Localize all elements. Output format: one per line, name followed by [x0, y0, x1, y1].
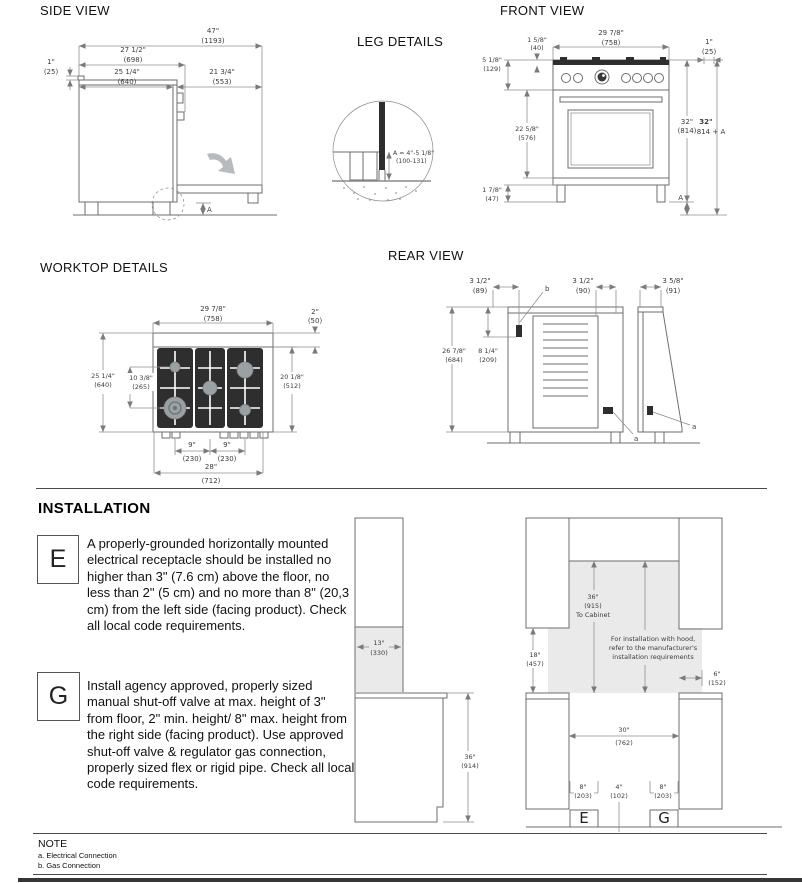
note-item-a: a. Electrical Connection — [38, 851, 117, 860]
dim-21in: 21 3/4" — [209, 68, 235, 76]
dim-w1038mm: (265) — [132, 383, 149, 391]
dim-r358-in: 3 5/8" — [662, 277, 683, 285]
dim-47mm: (1193) — [201, 37, 225, 45]
dim-w9b-in: 9" — [223, 441, 231, 449]
dim-2258mm: (576) — [518, 134, 535, 142]
label-a2: a — [692, 423, 696, 431]
dim-36-note: To Cabinet — [575, 611, 610, 619]
zone-letter-G: G — [658, 809, 670, 827]
burner-knob — [574, 74, 583, 83]
dim-4in: 4" — [615, 783, 622, 791]
electrical-connection-a — [603, 407, 613, 414]
dim-36in-side: 36" — [464, 753, 475, 761]
base-cabinet-right — [679, 693, 722, 809]
leg-right — [363, 152, 377, 180]
dim-32a-mm: 814 + A — [697, 128, 726, 136]
soffit-cabinet — [569, 518, 679, 561]
door-swing-arrow-icon — [207, 153, 235, 174]
dim-8l-in: 8" — [579, 783, 586, 791]
side-view-title: SIDE VIEW — [40, 3, 110, 18]
rear-leg — [85, 202, 98, 215]
dim-w1038in: 10 3/8" — [129, 374, 153, 382]
tall-cabinet — [355, 518, 403, 627]
gas-note-paragraph: Install agency approved, properly sized … — [87, 678, 355, 793]
front-leg — [153, 202, 170, 215]
dim-8r-in: 8" — [659, 783, 666, 791]
burner-knob — [622, 74, 631, 83]
dim-8r-mm: (203) — [654, 792, 671, 800]
door-foot — [248, 193, 258, 203]
dim-A-label: A — [207, 206, 212, 214]
burner-small — [170, 362, 180, 372]
label-a1: a — [634, 435, 638, 443]
dim-13in: 13" — [373, 639, 384, 647]
dim-r312b-in: 3 1/2" — [572, 277, 593, 285]
range-body-side — [79, 80, 177, 202]
countertop-side — [355, 693, 447, 698]
label-b: b — [545, 285, 550, 293]
dim-w2018mm: (512) — [283, 382, 300, 390]
leg-detail-dimension: A = 4"-5 1/8" (100-131) — [389, 150, 434, 180]
leg-formula-line1: A = 4"-5 1/8" — [393, 150, 434, 157]
clearance-zone-side — [355, 627, 403, 692]
backsplash-lip — [78, 76, 84, 80]
range-corner-edge — [379, 102, 385, 170]
dim-r312b-mm: (90) — [576, 287, 591, 295]
control-knob-tabs — [162, 432, 268, 438]
burner-medium — [237, 362, 253, 378]
worktop-details-title: WORKTOP DETAILS — [40, 260, 168, 275]
dim-518in: 5 1/8" — [482, 56, 502, 64]
dim-30in: 30" — [618, 726, 629, 734]
dim-27in: 27 1/2" — [120, 46, 146, 54]
dim-2258in: 22 5/8" — [515, 125, 539, 133]
dim-w9b-mm: (230) — [218, 455, 237, 463]
dim-158mm: (40) — [530, 44, 543, 52]
dim-2978in: 29 7/8" — [598, 29, 624, 37]
dim-w2in: 2" — [311, 308, 319, 316]
dim-36mm-side: (914) — [461, 762, 478, 770]
note-top-rule — [33, 833, 767, 834]
upper-cabinet-left — [526, 518, 569, 628]
dim-1in-right: 1" — [705, 38, 713, 46]
dim-6in: 6" — [713, 670, 720, 678]
dim-w9a-in: 9" — [188, 441, 196, 449]
dim-w28in: 28" — [205, 463, 217, 471]
dim-47in: 47" — [207, 27, 219, 35]
note-item-b: b. Gas Connection — [38, 861, 100, 870]
burner-knob — [633, 74, 642, 83]
front-view-drawing: 29 7/8" (758) 1 5/8" (40) 5 1/8" (129) 2… — [480, 20, 802, 216]
leg-details-title: LEG DETAILS — [357, 34, 443, 49]
dim-6mm: (152) — [708, 679, 725, 687]
dim-13mm: (330) — [370, 649, 387, 657]
dim-18mm: (457) — [526, 660, 543, 668]
open-door-platform — [177, 185, 262, 193]
dim-r358-mm: (91) — [666, 287, 681, 295]
front-view-range — [553, 57, 669, 202]
gas-connection-b — [516, 325, 522, 337]
burner-knob — [644, 74, 653, 83]
footer-bar — [18, 878, 802, 882]
leg-left — [350, 152, 363, 180]
dim-r312a-in: 3 1/2" — [469, 277, 490, 285]
note-bottom-rule — [33, 874, 767, 875]
upper-cabinet-right — [679, 518, 722, 629]
burner-knob — [562, 74, 571, 83]
leg-details-drawing: A = 4"-5 1/8" (100-131) — [330, 50, 480, 215]
side-view-range-body — [73, 76, 277, 220]
dim-w2018in: 20 1/8" — [280, 373, 304, 381]
dim-r2678-mm: (684) — [445, 356, 462, 364]
hood-note-line1: For installation with hood, — [611, 635, 695, 643]
worktop-drawing: 29 7/8" (758) 2" (50) 25 1/4" (640) 10 3… — [30, 275, 330, 487]
dim-w2514in: 25 1/4" — [91, 372, 115, 380]
dim-21mm: (553) — [213, 78, 232, 86]
dim-8l-mm: (203) — [574, 792, 591, 800]
burner-center — [203, 381, 217, 395]
note-heading: NOTE — [38, 838, 67, 850]
dim-1mm-right: (25) — [702, 48, 717, 56]
side-connection-a — [647, 406, 653, 415]
base-cabinet-left — [526, 693, 569, 809]
leg-formula-line2: (100-131) — [396, 158, 427, 165]
side-view-drawing: 47" (1193) 27 1/2" (698) 25 1/4" (640) 2… — [30, 20, 320, 242]
hood-note-line3: installation requirements — [612, 653, 694, 661]
dim-w2978mm: (758) — [204, 315, 223, 323]
dim-2978mm: (758) — [602, 39, 621, 47]
rear-leg-right — [611, 432, 620, 443]
dim-r2678-in: 26 7/8" — [442, 347, 466, 355]
front-view-leg — [657, 185, 665, 202]
install-side-diagram: 13" (330) 36" (914) — [340, 510, 520, 835]
hood-note-line2: refer to the manufacturer's — [609, 644, 698, 652]
dim-36mm-front: (915) — [584, 602, 601, 610]
dim-36in-front: 36" — [587, 593, 598, 601]
dim-25in: 25 1/4" — [114, 68, 140, 76]
oven-handle — [560, 97, 662, 102]
installation-divider — [36, 488, 767, 489]
cooktop-strip — [553, 60, 669, 65]
dim-w2514mm: (640) — [94, 381, 111, 389]
dim-18in: 18" — [529, 651, 540, 659]
dim-32a-in: 32" — [699, 118, 712, 126]
front-view-title: FRONT VIEW — [500, 3, 584, 18]
code-box-G: G — [37, 672, 80, 721]
dim-1in: 1" — [47, 58, 55, 66]
electrical-note-paragraph: A properly-grounded horizontally mounted… — [87, 536, 351, 634]
code-letter-G: G — [49, 682, 68, 711]
worktop-top-view — [153, 333, 273, 438]
side-panel-shape — [638, 307, 682, 432]
install-front-diagram: E G 36" (915) To Cabinet For installatio… — [520, 510, 802, 835]
dim-r814-mm: (209) — [479, 356, 496, 364]
dim-1mm: (25) — [44, 68, 59, 76]
dim-r312a-mm: (89) — [473, 287, 488, 295]
base-cabinet-side — [355, 698, 443, 822]
installation-heading: INSTALLATION — [38, 500, 151, 517]
dim-32mm: (814) — [678, 127, 697, 135]
dim-178mm: (47) — [485, 195, 498, 203]
front-view-leg — [557, 185, 565, 202]
dim-32in: 32" — [681, 118, 693, 126]
burner-knob — [655, 74, 664, 83]
dim-178in: 1 7/8" — [482, 186, 502, 194]
dim-w9a-mm: (230) — [183, 455, 202, 463]
rear-leg-left — [510, 432, 520, 443]
dim-27mm: (698) — [124, 56, 143, 64]
dim-4mm: (102) — [610, 792, 627, 800]
dim-30mm: (762) — [615, 739, 632, 747]
dim-25mm: (640) — [118, 78, 137, 86]
dim-w2mm: (50) — [308, 317, 323, 325]
code-box-E: E — [37, 535, 79, 584]
dim-r814-in: 8 1/4" — [478, 347, 498, 355]
manual-page: SIDE VIEW FRONT VIEW LEG DETAILS WORKTOP… — [0, 0, 802, 883]
zone-letter-E: E — [579, 809, 588, 827]
handle-stub — [177, 112, 184, 120]
floor-speckle — [343, 186, 417, 201]
knob-stub — [177, 93, 183, 103]
rear-side-panel — [638, 307, 682, 443]
rear-view-drawing: b a a 3 1/2" (89) 3 1/2" (90) 3 5/8" (91… — [380, 260, 720, 460]
side-panel-leg — [655, 432, 664, 443]
code-letter-E: E — [50, 545, 67, 574]
dim-w2978in: 29 7/8" — [200, 305, 226, 313]
dim-518mm: (129) — [483, 65, 500, 73]
dim-158in: 1 5/8" — [527, 36, 547, 44]
dim-w28mm: (712) — [202, 477, 221, 485]
dim-A-front: A — [678, 194, 683, 202]
burner-small2 — [240, 405, 251, 416]
